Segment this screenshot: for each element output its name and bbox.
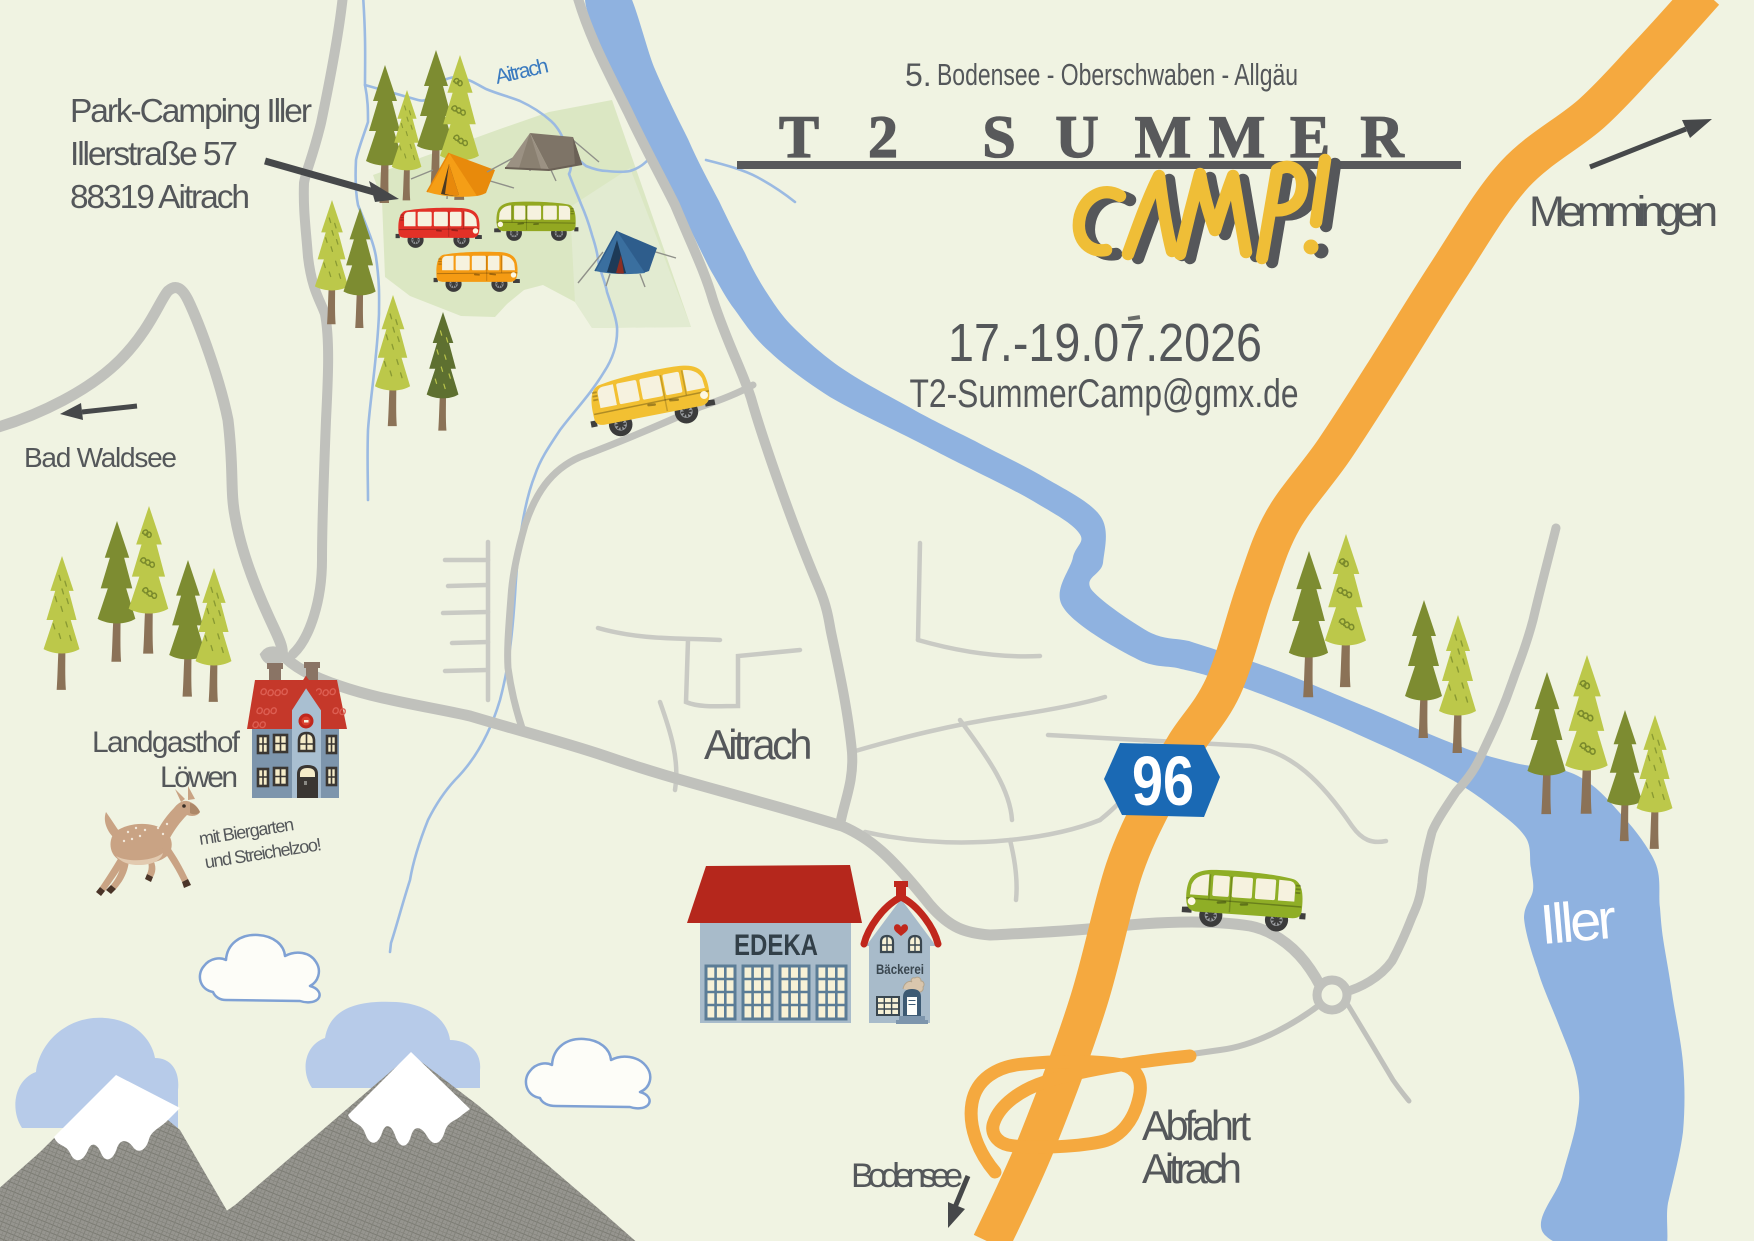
svg-text:96: 96 — [1132, 742, 1194, 820]
svg-text:R: R — [1360, 104, 1404, 170]
svg-text:Bodensee: Bodensee — [851, 1157, 963, 1195]
svg-text:88319 Aitrach: 88319 Aitrach — [70, 179, 250, 216]
svg-text:Landgasthof: Landgasthof — [92, 726, 241, 759]
svg-text:Aitrach: Aitrach — [704, 721, 813, 768]
svg-text:EDEKA: EDEKA — [734, 929, 818, 962]
svg-text:Abfahrt: Abfahrt — [1142, 1102, 1251, 1149]
svg-text:Bad Waldsee: Bad Waldsee — [24, 442, 177, 473]
svg-text:5.: 5. — [905, 57, 932, 93]
svg-text:Bäckerei: Bäckerei — [876, 961, 924, 977]
svg-text:S: S — [982, 104, 1015, 170]
svg-text:Bodensee - Oberschwaben - Allg: Bodensee - Oberschwaben - Allgäu — [937, 57, 1298, 92]
svg-text:Illerstraße 57: Illerstraße 57 — [70, 136, 238, 173]
svg-text:T2-SummerCamp@gmx.de: T2-SummerCamp@gmx.de — [910, 372, 1299, 416]
svg-text:M: M — [1135, 104, 1192, 170]
svg-text:Aitrach: Aitrach — [1142, 1145, 1242, 1192]
svg-text:Löwen: Löwen — [160, 761, 238, 794]
svg-text:U: U — [1055, 104, 1098, 170]
svg-text:Memmingen: Memmingen — [1529, 188, 1718, 236]
svg-text:M: M — [1209, 104, 1266, 170]
svg-text:2: 2 — [868, 104, 898, 170]
svg-text:T: T — [779, 104, 819, 170]
svg-text:Iller: Iller — [1538, 887, 1619, 956]
svg-text:Park-Camping Iller: Park-Camping Iller — [70, 93, 312, 130]
svg-text:17.-19.07.2026: 17.-19.07.2026 — [948, 313, 1262, 373]
